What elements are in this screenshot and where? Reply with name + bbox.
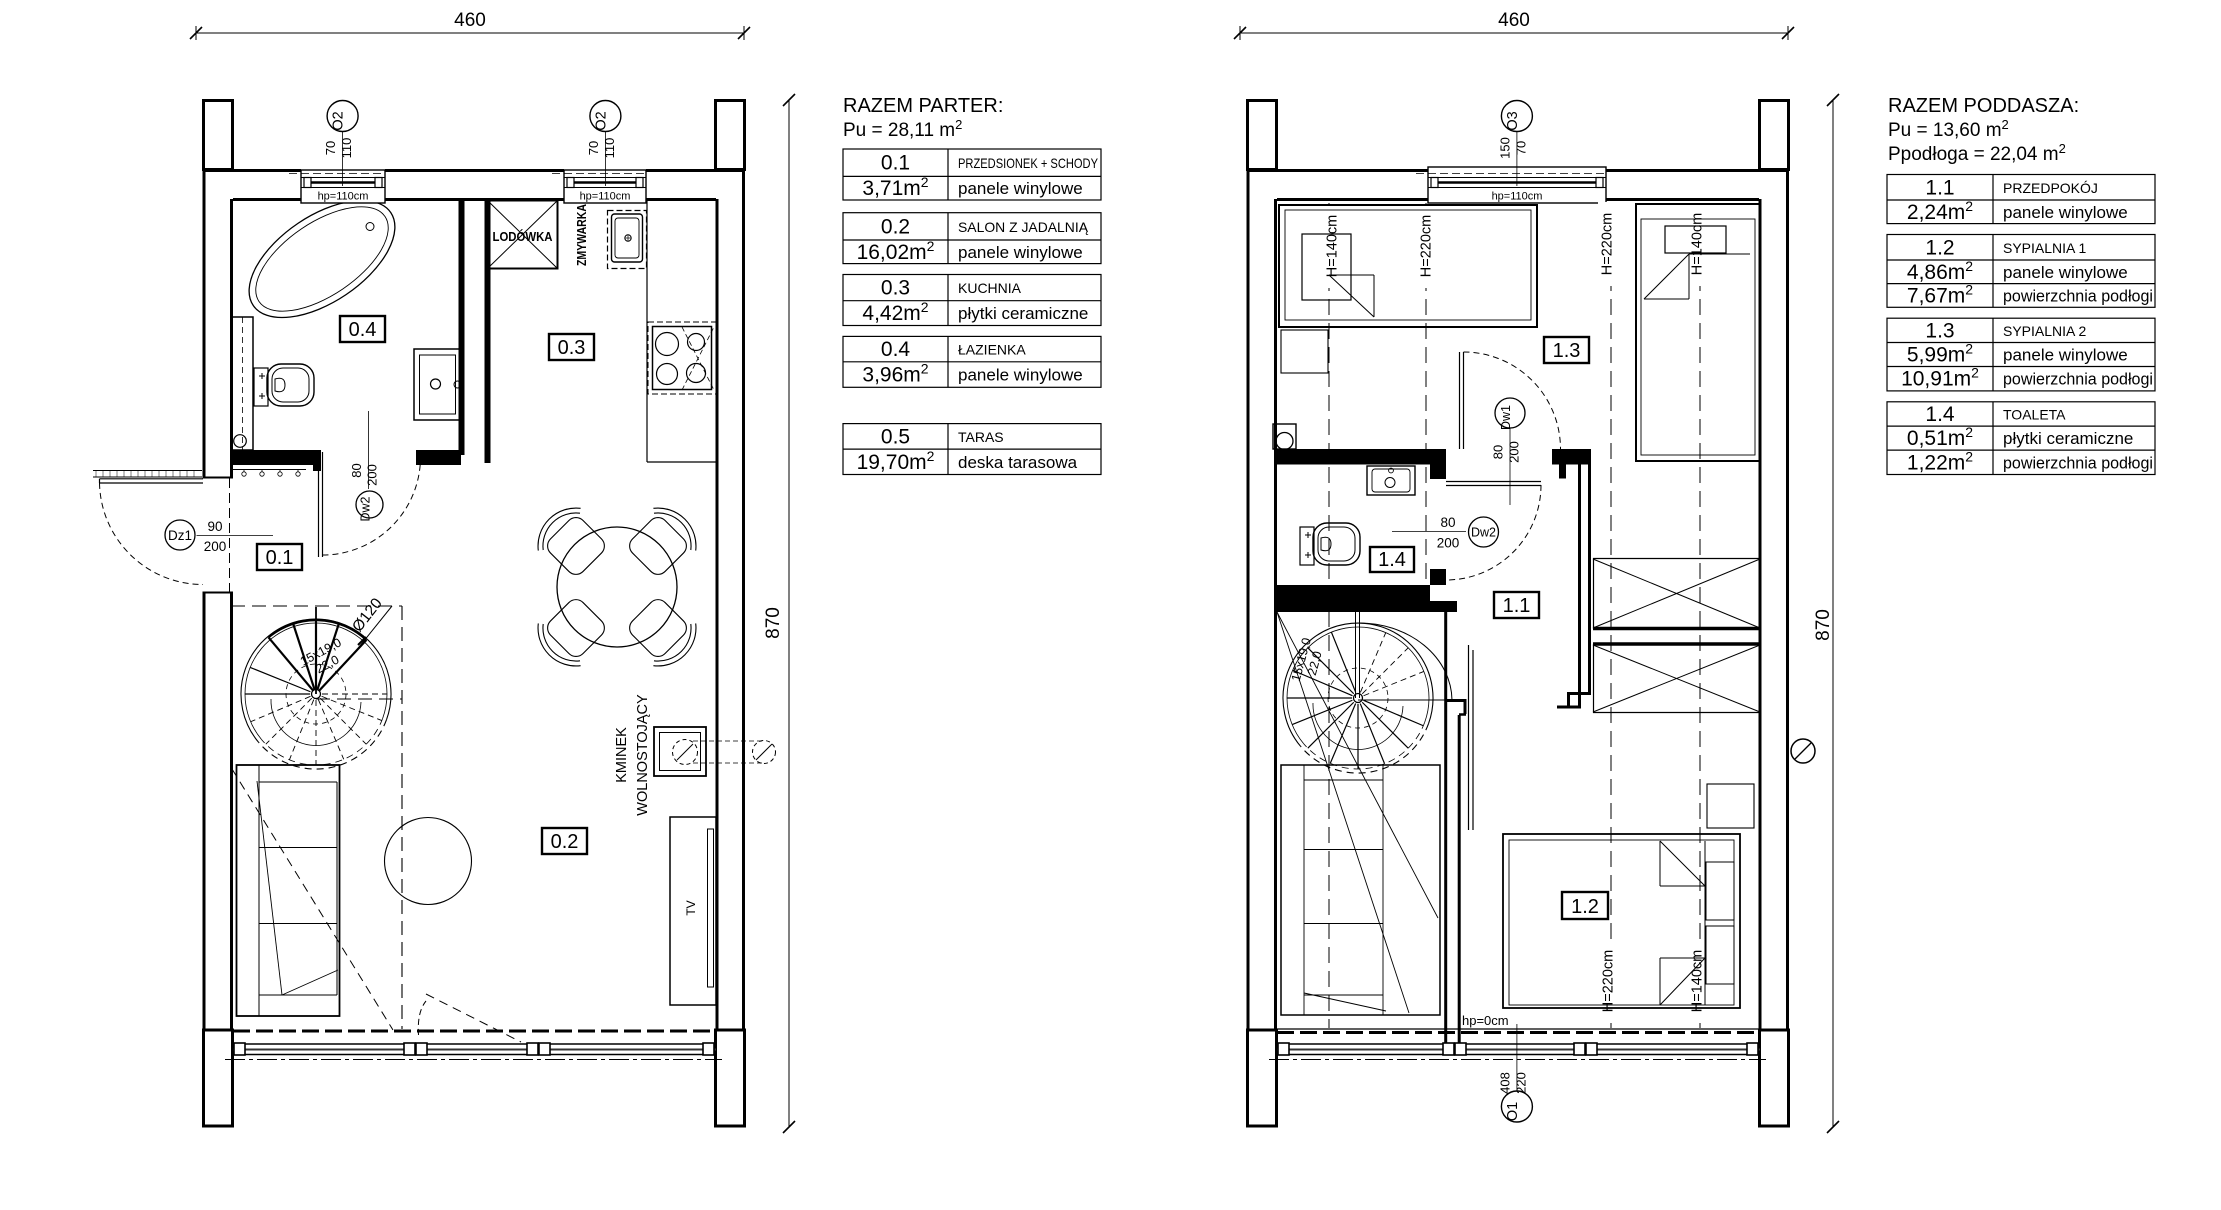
svg-text:0.1: 0.1 (266, 547, 294, 569)
svg-text:hp=0cm: hp=0cm (1462, 1013, 1509, 1028)
svg-text:TOALETA: TOALETA (2003, 406, 2066, 422)
svg-text:H=220cm: H=220cm (1600, 213, 1616, 275)
svg-text:200: 200 (1507, 441, 1522, 463)
svg-text:200: 200 (204, 539, 227, 554)
svg-text:Pu = 28,11 m2: Pu = 28,11 m2 (843, 117, 962, 141)
svg-text:200: 200 (365, 464, 380, 486)
svg-text:Dw2: Dw2 (1471, 526, 1496, 540)
svg-text:110: 110 (339, 138, 354, 159)
svg-text:70: 70 (1513, 141, 1528, 155)
svg-text:H=140cm: H=140cm (1690, 213, 1706, 275)
svg-text:200: 200 (1437, 536, 1460, 551)
svg-text:powierzchnia podłogi: powierzchnia podłogi (2003, 453, 2153, 472)
svg-text:16,02m2: 16,02m2 (857, 238, 935, 264)
svg-text:O2: O2 (331, 111, 347, 130)
svg-text:panele winylowe: panele winylowe (2003, 203, 2128, 222)
svg-text:panele winylowe: panele winylowe (958, 179, 1083, 198)
svg-text:1.4: 1.4 (1925, 403, 1955, 426)
svg-text:Pu = 13,60 m2: Pu = 13,60 m2 (1888, 117, 2009, 141)
svg-text:powierzchnia podłogi: powierzchnia podłogi (2003, 286, 2153, 305)
svg-text:0.1: 0.1 (881, 152, 910, 175)
svg-text:O2: O2 (593, 111, 609, 130)
svg-text:460: 460 (454, 10, 486, 31)
svg-text:0.4: 0.4 (881, 338, 911, 361)
svg-text:0.4: 0.4 (349, 319, 377, 341)
svg-text:panele winylowe: panele winylowe (958, 366, 1083, 385)
svg-text:10,91m2: 10,91m2 (1901, 365, 1979, 391)
svg-text:5,99m2: 5,99m2 (1907, 341, 1973, 367)
svg-text:1.2: 1.2 (1925, 236, 1954, 259)
svg-text:H=220cm: H=220cm (1601, 950, 1617, 1012)
svg-text:19,70m2: 19,70m2 (857, 448, 935, 474)
svg-text:70: 70 (586, 141, 601, 155)
svg-text:2,24m2: 2,24m2 (1907, 198, 1973, 224)
svg-text:3,71m2: 3,71m2 (862, 174, 928, 200)
svg-text:1.2: 1.2 (1571, 896, 1599, 918)
svg-text:RAZEM PARTER:: RAZEM PARTER: (843, 95, 1003, 117)
svg-text:hp=110cm: hp=110cm (318, 191, 369, 203)
svg-text:3,96m2: 3,96m2 (862, 361, 928, 387)
svg-text:Ppodłoga = 22,04 m2: Ppodłoga = 22,04 m2 (1888, 141, 2066, 165)
svg-text:4,42m2: 4,42m2 (862, 299, 928, 325)
svg-text:90: 90 (207, 519, 222, 534)
svg-text:7,67m2: 7,67m2 (1907, 281, 1973, 307)
svg-text:Dz1: Dz1 (168, 528, 192, 543)
svg-text:hp=110cm: hp=110cm (1492, 191, 1543, 203)
svg-text:TARAS: TARAS (958, 429, 1004, 445)
svg-text:1.1: 1.1 (1925, 176, 1954, 199)
svg-text:WOLNOSTOJĄCY: WOLNOSTOJĄCY (635, 694, 651, 816)
svg-text:ŁAZIENKA: ŁAZIENKA (958, 342, 1026, 358)
svg-text:870: 870 (763, 607, 784, 639)
svg-text:0.3: 0.3 (558, 337, 586, 359)
svg-text:0.2: 0.2 (551, 831, 579, 853)
svg-text:0.3: 0.3 (881, 277, 910, 300)
svg-text:1.4: 1.4 (1378, 549, 1406, 571)
svg-text:TV: TV (684, 900, 698, 915)
svg-text:deska tarasowa: deska tarasowa (958, 453, 1078, 472)
svg-text:RAZEM PODDASZA:: RAZEM PODDASZA: (1888, 95, 2079, 117)
svg-text:80: 80 (349, 463, 364, 477)
svg-text:KMINEK: KMINEK (614, 727, 630, 783)
svg-text:SALON Z JADALNIĄ: SALON Z JADALNIĄ (958, 219, 1089, 235)
svg-text:460: 460 (1498, 10, 1530, 31)
svg-text:H=140cm: H=140cm (1690, 950, 1706, 1012)
svg-text:150: 150 (1497, 137, 1512, 159)
svg-text:SYPIALNIA 2: SYPIALNIA 2 (2003, 323, 2086, 339)
svg-text:408: 408 (1498, 1072, 1513, 1094)
svg-text:H=140cm: H=140cm (1325, 215, 1341, 277)
svg-text:panele winylowe: panele winylowe (2003, 346, 2128, 365)
svg-text:870: 870 (1813, 609, 1834, 641)
svg-text:4,86m2: 4,86m2 (1907, 258, 1973, 284)
svg-text:panele winylowe: panele winylowe (2003, 263, 2128, 282)
svg-text:0.5: 0.5 (881, 425, 910, 448)
svg-text:1.3: 1.3 (1925, 319, 1954, 342)
svg-text:0.2: 0.2 (881, 215, 910, 238)
svg-text:KUCHNIA: KUCHNIA (958, 280, 1022, 296)
svg-text:H=220cm: H=220cm (1419, 215, 1435, 277)
svg-text:powierzchnia podłogi: powierzchnia podłogi (2003, 370, 2153, 389)
svg-text:220: 220 (1514, 1072, 1529, 1094)
svg-text:80: 80 (1440, 515, 1455, 530)
svg-text:Dw2: Dw2 (359, 496, 373, 521)
svg-text:1.1: 1.1 (1503, 595, 1531, 617)
svg-text:panele winylowe: panele winylowe (958, 243, 1083, 262)
svg-text:LODÓWKA: LODÓWKA (493, 229, 553, 244)
svg-text:hp=110cm: hp=110cm (580, 191, 631, 203)
svg-text:1,22m2: 1,22m2 (1907, 448, 1973, 474)
svg-text:80: 80 (1491, 445, 1506, 459)
svg-text:płytki ceramiczne: płytki ceramiczne (958, 304, 1088, 323)
svg-text:płytki ceramiczne: płytki ceramiczne (2003, 429, 2133, 448)
svg-text:0,51m2: 0,51m2 (1907, 424, 1973, 450)
svg-text:O3: O3 (1505, 111, 1521, 130)
svg-text:110: 110 (602, 138, 617, 159)
svg-text:1.3: 1.3 (1553, 340, 1581, 362)
svg-text:O1: O1 (1505, 1102, 1521, 1121)
svg-text:Dw1: Dw1 (1499, 405, 1513, 430)
svg-text:PRZEDPOKÓJ: PRZEDPOKÓJ (2003, 180, 2098, 196)
svg-text:SYPIALNIA 1: SYPIALNIA 1 (2003, 240, 2086, 256)
svg-text:70: 70 (323, 141, 338, 155)
svg-text:ZMYWARKA: ZMYWARKA (575, 204, 589, 266)
svg-text:PRZEDSIONEK + SCHODY: PRZEDSIONEK + SCHODY (958, 155, 1099, 171)
